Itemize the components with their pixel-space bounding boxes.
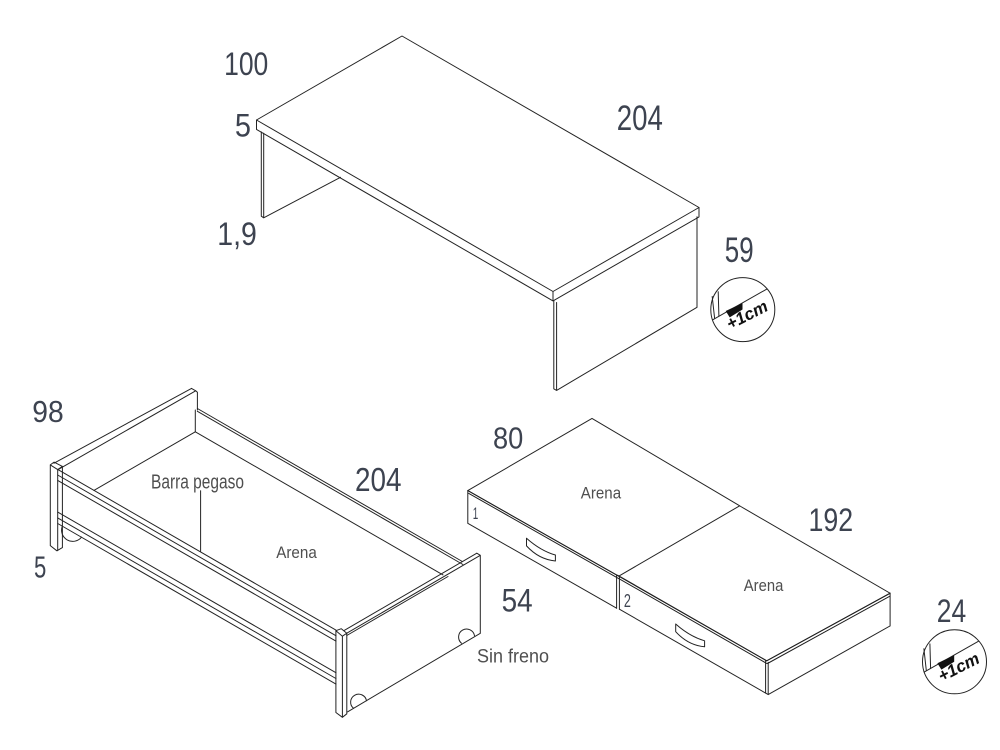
svg-text:59: 59 [725,231,754,270]
svg-text:100: 100 [224,46,268,82]
svg-text:5: 5 [34,550,46,585]
svg-text:80: 80 [493,421,523,456]
svg-text:5: 5 [235,108,251,144]
svg-text:54: 54 [502,583,533,619]
svg-text:2: 2 [624,591,631,611]
svg-text:Arena: Arena [744,577,784,595]
svg-text:204: 204 [355,461,402,498]
svg-text:Barra pegaso: Barra pegaso [151,472,244,494]
svg-text:98: 98 [32,394,63,429]
svg-text:Arena: Arena [581,485,622,503]
svg-text:Arena: Arena [276,543,317,562]
svg-text:24: 24 [937,593,966,629]
svg-text:1,9: 1,9 [217,216,257,252]
svg-text:1: 1 [473,504,479,523]
svg-text:Sin freno: Sin freno [477,646,549,667]
svg-text:192: 192 [809,502,854,538]
svg-text:204: 204 [617,99,663,138]
